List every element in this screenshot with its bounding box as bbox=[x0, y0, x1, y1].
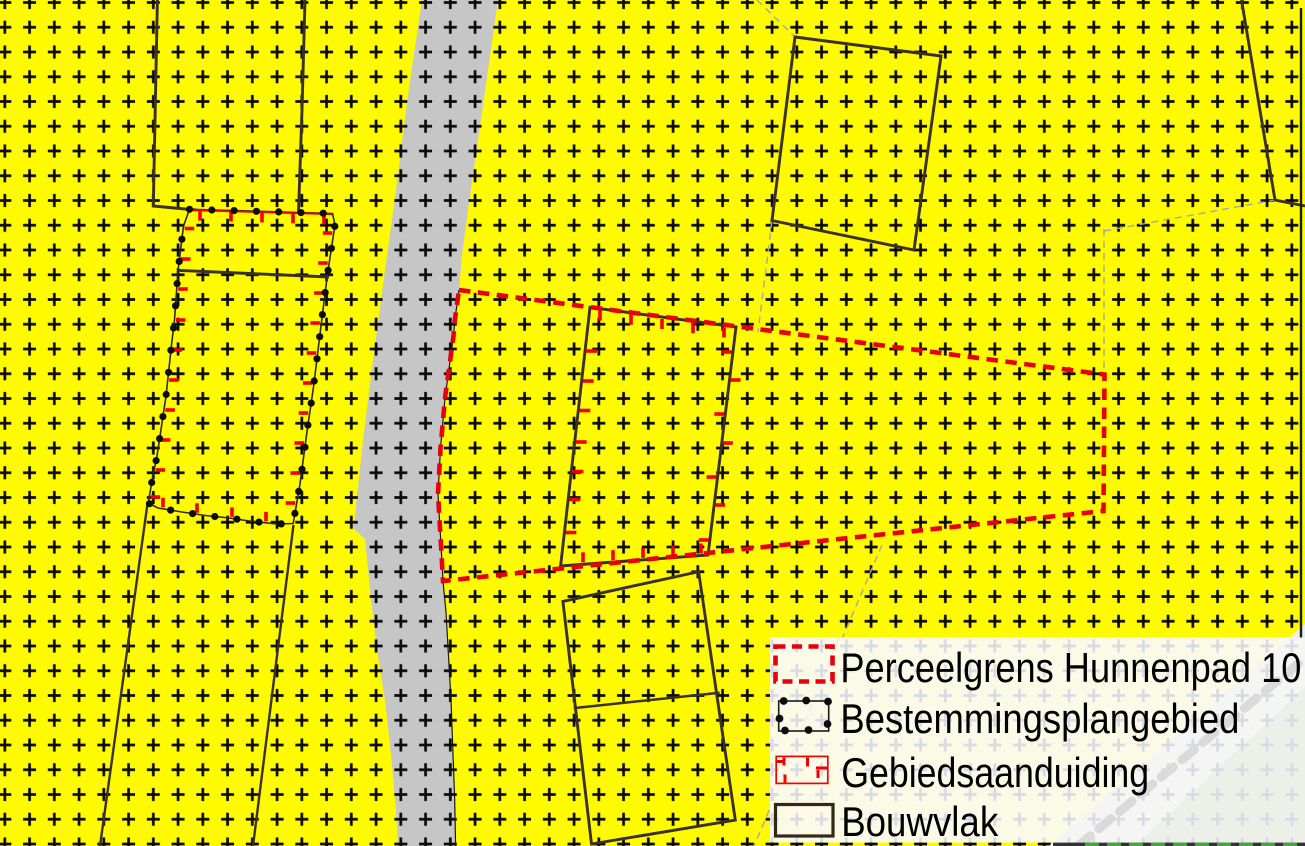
svg-text:Perceelgrens Hunnenpad 10: Perceelgrens Hunnenpad 10 bbox=[840, 644, 1301, 691]
svg-text:Bouwvlak: Bouwvlak bbox=[841, 798, 999, 845]
svg-text:Gebiedsaanduiding: Gebiedsaanduiding bbox=[841, 749, 1149, 796]
svg-text:Bestemmingsplangebied: Bestemmingsplangebied bbox=[840, 695, 1239, 742]
